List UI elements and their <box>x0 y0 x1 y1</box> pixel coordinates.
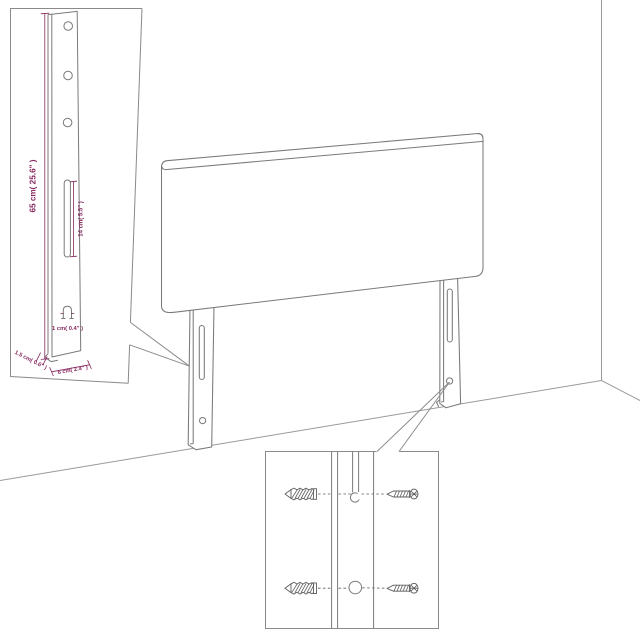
strip-slot <box>353 452 359 493</box>
leg-inset-callout-line-upper <box>130 322 189 366</box>
left-leg-hole <box>200 418 206 424</box>
inset-leg-side-edge <box>48 14 52 354</box>
hardware-inset-parts <box>285 488 418 594</box>
inset-leg-hole-1 <box>64 22 73 31</box>
wall-plug-bottom-icon <box>285 582 317 594</box>
strip-slot-hook <box>350 493 359 502</box>
hook-dimension-label: 1 cm( 0.4" ) <box>52 326 83 332</box>
product-diagram: 65 cm( 25.6" ) 14 cm( 5.5" ) 1 cm( 0.4" … <box>0 0 640 640</box>
side-dimension-label: 1.5 cm( 0.6" ) <box>13 350 47 371</box>
screw-top-icon <box>387 489 418 499</box>
slot-dimension-label: 14 cm( 5.5" ) <box>79 201 85 237</box>
wall-plug-top-icon <box>285 488 317 500</box>
leg-inset-drawing <box>45 11 81 361</box>
headboard-panel <box>162 134 484 313</box>
floor-line-right <box>602 381 640 401</box>
floor-line-left <box>0 381 602 481</box>
inset-leg-hole-2 <box>64 71 73 80</box>
headboard-right-leg <box>437 277 461 407</box>
left-leg-slot <box>199 326 204 380</box>
hardware-inset-callout-line-left <box>377 382 450 452</box>
headboard-left-leg <box>188 306 214 450</box>
screw-bottom-icon <box>387 583 418 593</box>
right-leg-hole <box>447 378 453 384</box>
leg-inset-border-right-upper <box>130 9 142 323</box>
strip-hole <box>349 581 362 594</box>
inset-leg-hole-3 <box>63 118 72 127</box>
leg-inset-callout-line-lower <box>130 345 190 366</box>
assembly-dashed-lines <box>318 494 386 588</box>
hardware-inset-leg-strip <box>332 452 374 629</box>
width-dimension-label: 6 cm( 2.4" ) <box>57 365 88 376</box>
panel-outline <box>162 134 484 313</box>
inset-leg-slot <box>64 180 70 257</box>
hardware-inset-callout-line-right <box>399 382 450 452</box>
hardware-detail-inset <box>266 382 450 629</box>
leg-inset-border-right-lower <box>128 345 129 384</box>
right-leg-slot <box>447 289 452 342</box>
height-dimension-label: 65 cm( 25.6" ) <box>29 159 38 212</box>
hardware-inset-border <box>266 452 439 629</box>
